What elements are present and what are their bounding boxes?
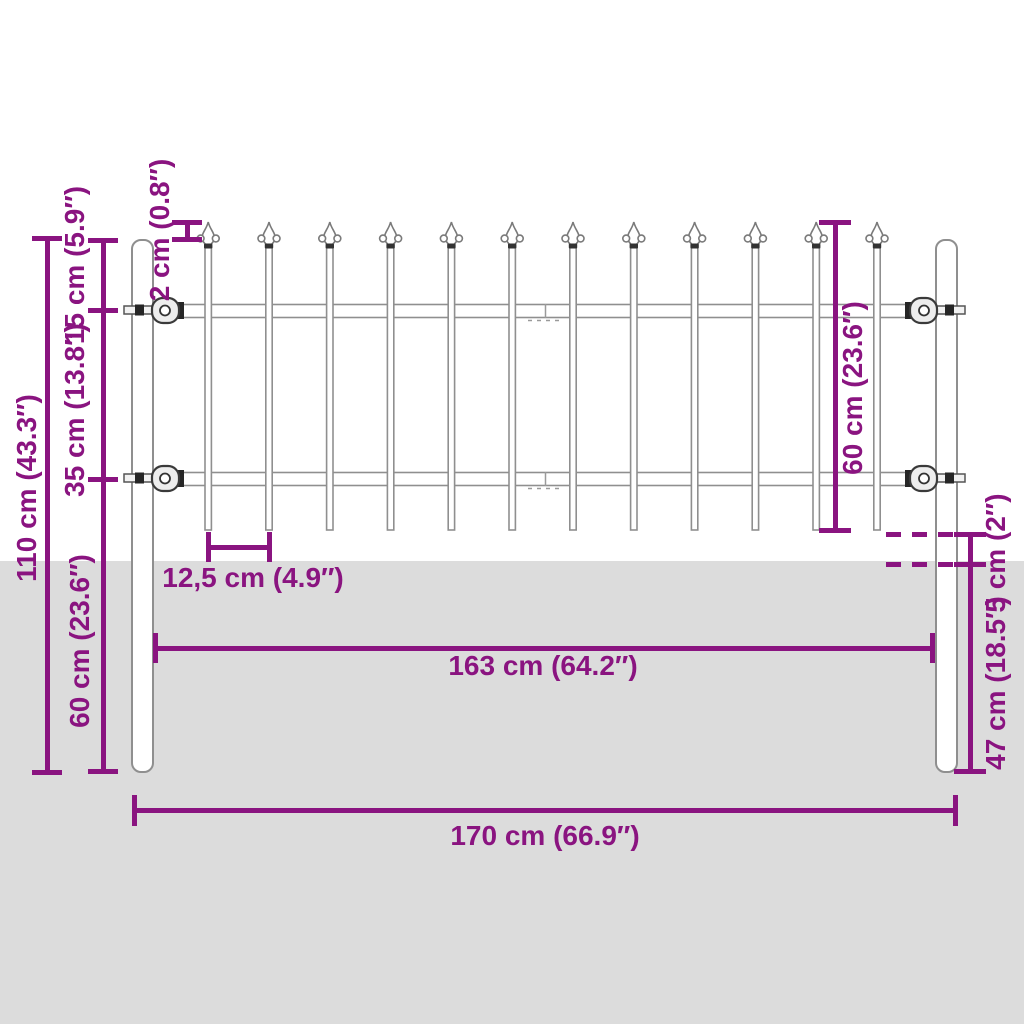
dim-line	[134, 808, 955, 813]
dim-tick	[88, 238, 118, 243]
dim-line	[101, 238, 106, 774]
diagram-stage: 110 cm (43.3″) 15 cm (5.9″) 35 cm (13.8″…	[0, 0, 1024, 1024]
dim-label: 2 cm (0.8″)	[146, 159, 174, 302]
dim-tick	[172, 237, 202, 242]
dim-label: 47 cm (18.5″)	[982, 596, 1010, 770]
dim-label: 15 cm (5.9″)	[61, 186, 89, 344]
dim-tick	[88, 769, 118, 774]
dim-tick	[88, 477, 118, 482]
dim-line	[208, 545, 269, 550]
dim-tick	[32, 236, 62, 241]
dim-line	[45, 238, 50, 775]
dim-tick	[172, 220, 202, 225]
dim-label: 163 cm (64.2″)	[448, 652, 637, 680]
dim-label: 110 cm (43.3″)	[13, 394, 41, 582]
dim-tick	[88, 308, 118, 313]
dimension-annotations: 110 cm (43.3″) 15 cm (5.9″) 35 cm (13.8″…	[0, 0, 1024, 1024]
dim-tick	[32, 770, 62, 775]
dim-label: 170 cm (66.9″)	[450, 822, 639, 850]
dim-label: 5 cm (2″)	[982, 493, 1010, 612]
dim-label: 60 cm (23.6″)	[66, 554, 94, 728]
dim-label: 35 cm (13.8″)	[61, 323, 89, 497]
dim-line	[968, 532, 973, 774]
dim-tick	[819, 220, 851, 225]
dim-label: 60 cm (23.6″)	[839, 301, 867, 475]
dim-tick	[819, 528, 851, 533]
dim-label: 12,5 cm (4.9″)	[162, 564, 344, 592]
